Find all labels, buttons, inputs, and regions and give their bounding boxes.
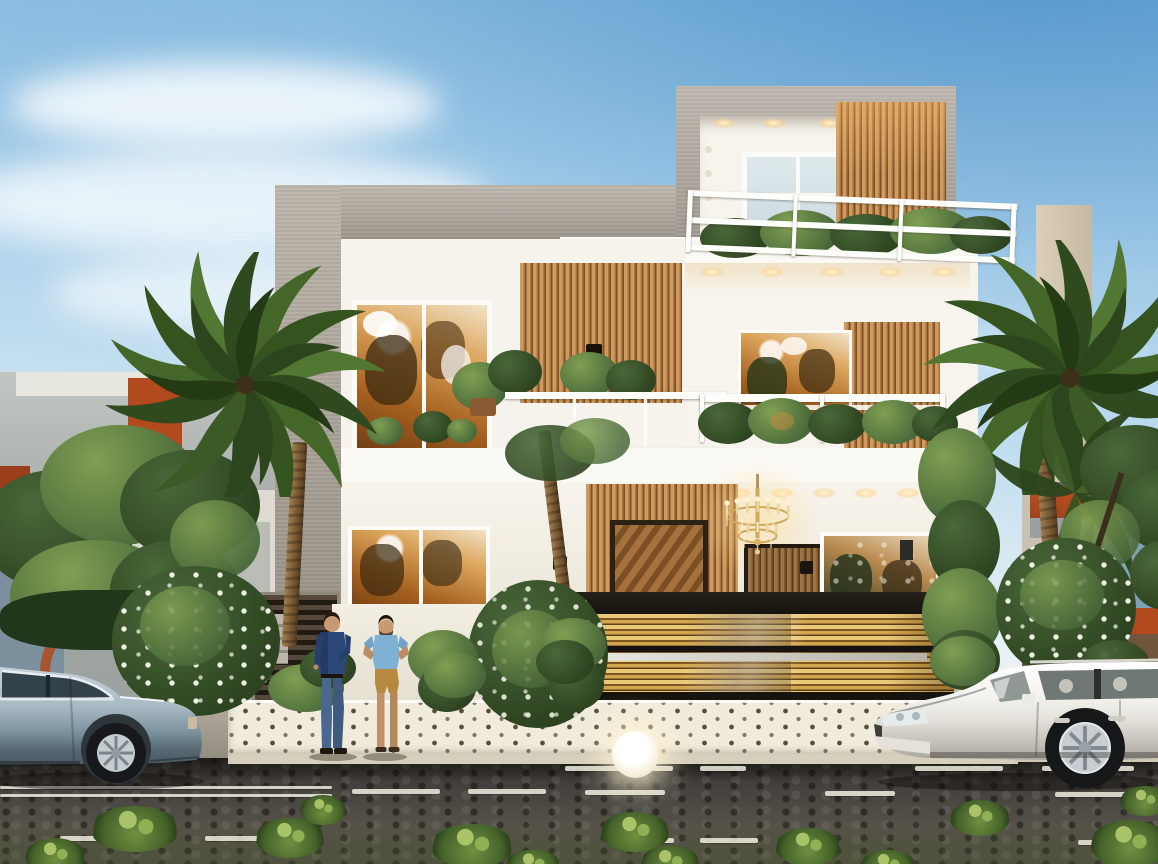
street-weeds	[0, 0, 1158, 864]
grass-tuft	[505, 850, 561, 864]
grass-tuft	[430, 824, 514, 864]
grass-tuft	[775, 828, 841, 864]
grass-tuft	[300, 795, 346, 825]
grass-tuft	[1120, 786, 1158, 816]
grass-tuft	[860, 850, 916, 864]
grass-tuft	[1090, 820, 1158, 864]
architectural-rendering	[0, 0, 1158, 864]
grass-tuft	[950, 800, 1010, 836]
grass-tuft	[90, 806, 180, 852]
grass-tuft	[25, 838, 85, 864]
